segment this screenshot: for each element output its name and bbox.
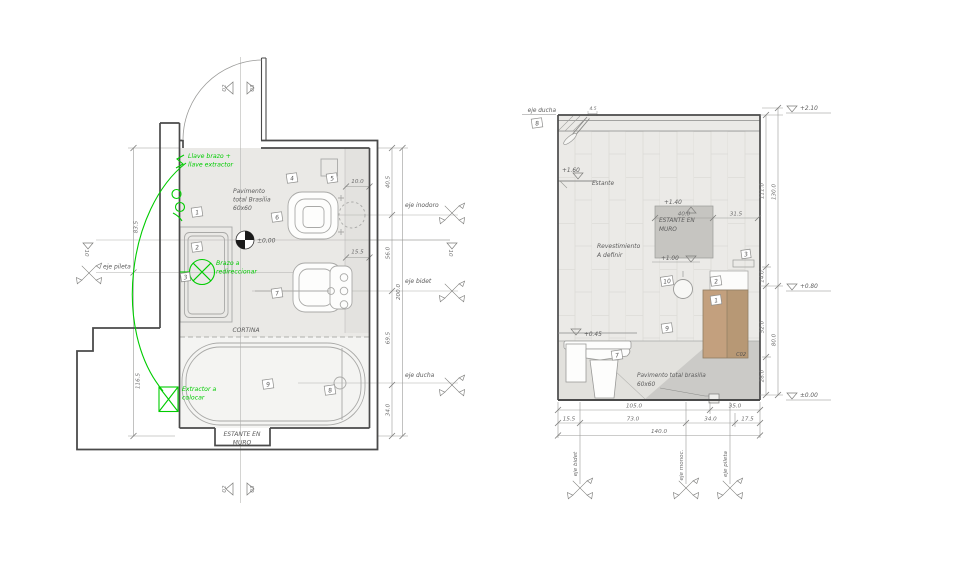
level-080-label: +0.80 xyxy=(800,284,818,290)
dim-80-0: 80.0 xyxy=(772,333,778,346)
architectural-drawing: 83.5 116.5 10 eje pileta 40.5 56.0 69.5 … xyxy=(0,0,973,567)
level-000-label: ±0.00 xyxy=(800,393,818,399)
pavimento-label-1: Pavimento xyxy=(233,188,265,195)
brazo-note-1: Brazo a xyxy=(216,260,240,267)
tag-3: 3 xyxy=(180,272,190,282)
dim-31-5: 31.5 xyxy=(730,212,743,218)
dim-15-5-e: 15.5 xyxy=(563,417,576,423)
llave-note-1: Llave brazo + xyxy=(188,153,231,160)
green-extractor-symbol xyxy=(159,387,178,412)
level-140: +1.40 xyxy=(664,200,682,206)
dim-200-0: 200.0 xyxy=(396,284,402,300)
elevation-dims-right: 111.0 14.0 52.0 28.0 130.0 80.0 +2.10 +0… xyxy=(760,105,832,400)
dim-52-0: 52.0 xyxy=(760,320,766,333)
estante-muro-label-2: MURO xyxy=(233,440,252,447)
tag-1: 1 xyxy=(191,207,203,218)
level-flag-210: +2.10 xyxy=(786,106,831,113)
dim-69-5: 69.5 xyxy=(386,331,392,344)
tag-9-elev: 9 xyxy=(661,323,673,334)
floor-plan-view: 83.5 116.5 10 eje pileta 40.5 56.0 69.5 … xyxy=(76,57,464,503)
section-02-bottom: 02 xyxy=(222,485,228,493)
revestimiento-label-2: A definir xyxy=(596,252,623,259)
dim-4-5: 4.5 xyxy=(590,106,597,112)
pavimento-label-2: total Brasilia xyxy=(233,197,271,204)
tag-3-elev: 3 xyxy=(741,249,751,259)
dim-10-0: 10.0 xyxy=(351,179,364,185)
tag-1-elev: 1 xyxy=(710,295,722,306)
tag-2-elev: 2 xyxy=(710,276,722,287)
tag-4: 4 xyxy=(286,173,298,184)
dim-40-5: 40.5 xyxy=(386,175,392,188)
datum-label-left: 10 xyxy=(83,249,89,257)
dim-15-5: 15.5 xyxy=(351,250,364,256)
dim-73-0: 73.0 xyxy=(627,417,640,423)
section-marker-bottom: 02 03 xyxy=(222,483,256,495)
estante-muro-elev-2: MURO xyxy=(659,227,677,233)
svg-text:10: 10 xyxy=(663,278,672,286)
axis-label-inodoro: eje inodoro xyxy=(405,202,439,209)
tag-8-elev: 8 xyxy=(531,118,543,129)
dim-140-0: 140.0 xyxy=(651,429,667,435)
pavimento-label-3: 60x60 xyxy=(233,205,252,212)
dim-40-0: 40.0 xyxy=(678,212,691,218)
tag-9: 9 xyxy=(262,379,274,390)
elevation-dims-bottom: 105.0 35.0 15.5 73.0 34.0 17.5 140.0 eje… xyxy=(555,402,763,499)
axis-label-bidet-elev: eje bidet xyxy=(573,451,579,476)
llave-note-2: llave extractor xyxy=(188,161,234,169)
level-flag-000: ±0.00 xyxy=(786,393,831,400)
eje-ducha-label: eje ducha xyxy=(528,108,557,114)
drawing-svg: 83.5 116.5 10 eje pileta 40.5 56.0 69.5 … xyxy=(0,0,973,567)
drain-box xyxy=(709,394,719,403)
axis-label-monoc-elev: eje monoc. xyxy=(679,449,685,480)
level-flag-080: +0.80 xyxy=(786,284,831,291)
extractor-note-2: colocar xyxy=(182,395,205,402)
tag-7: 7 xyxy=(271,288,283,299)
round-basin xyxy=(674,280,693,299)
estante-muro-label-1: ESTANTE EN xyxy=(224,431,261,438)
axis-mark-bidet xyxy=(439,281,464,302)
dim-83-5: 83.5 xyxy=(134,220,140,233)
axis-label-ducha: eje ducha xyxy=(405,372,435,379)
tag-5: 5 xyxy=(326,173,338,184)
extractor-note-1: Extractor a xyxy=(182,385,216,393)
door-swing-arc xyxy=(183,60,262,139)
tag-6: 6 xyxy=(271,212,283,223)
axis-label-pileta: eje pileta xyxy=(103,264,131,271)
dim-56-0: 56.0 xyxy=(386,246,392,259)
door xyxy=(183,58,266,141)
cabinet-code-label: C02 xyxy=(736,352,746,358)
dim-111-0: 111.0 xyxy=(760,183,766,199)
dim-14-0: 14.0 xyxy=(760,270,766,283)
section-03-bottom: 03 xyxy=(250,485,256,493)
dim-116-5: 116.5 xyxy=(136,373,142,389)
level-210-label: +2.10 xyxy=(800,106,818,112)
tag-10-elev: 10 xyxy=(660,276,673,287)
estante-label: Estante xyxy=(592,181,614,187)
axis-label-pileta-elev: eje pileta xyxy=(723,450,729,477)
dim-34-0-e: 34.0 xyxy=(704,417,717,423)
estante-muro-elev-1: ESTANTE EN xyxy=(659,218,695,224)
brazo-note-2: redireccionar xyxy=(216,269,257,276)
dim-28-0: 28.0 xyxy=(760,369,766,382)
cortina-label: CORTINA xyxy=(232,327,259,334)
level-100: +1.00 xyxy=(661,256,679,262)
datum-marker-left xyxy=(83,243,93,249)
cabinet-c02 xyxy=(703,290,748,358)
section-03-top: 03 xyxy=(250,84,256,92)
dim-105-0: 105.0 xyxy=(626,404,642,410)
dim-130-0: 130.0 xyxy=(772,184,778,200)
level-160: +1.60 xyxy=(562,168,580,174)
section-02-top: 02 xyxy=(222,84,228,92)
tag-7-elev: 7 xyxy=(611,350,623,361)
level-045: +0.45 xyxy=(584,332,602,338)
dim-35-0: 35.0 xyxy=(729,404,742,410)
revestimiento-label-1: Revestimiento xyxy=(597,243,641,250)
pavimento-elev-2: 60x60 xyxy=(637,382,655,388)
level-zero-label: ±0,00 xyxy=(257,238,276,245)
axis-mark-pileta xyxy=(76,263,101,284)
pavimento-elev-1: Pavimento total brasilia xyxy=(637,373,706,379)
tag-8: 8 xyxy=(324,385,336,396)
datum-label-right: 10 xyxy=(447,249,453,257)
dim-34-0: 34.0 xyxy=(386,403,392,416)
axis-label-bidet: eje bidet xyxy=(405,278,432,285)
elevation-view: +0.45 +1.60 Estante +1.40 +1.00 40.0 31.… xyxy=(522,105,831,499)
tag-2: 2 xyxy=(191,242,203,253)
datum-marker-right xyxy=(447,243,457,249)
axis-mark-ducha xyxy=(439,375,464,396)
dim-17-5: 17.5 xyxy=(741,417,754,423)
section-marker-top: 02 03 xyxy=(222,82,256,94)
axis-mark-inodoro xyxy=(439,203,464,224)
